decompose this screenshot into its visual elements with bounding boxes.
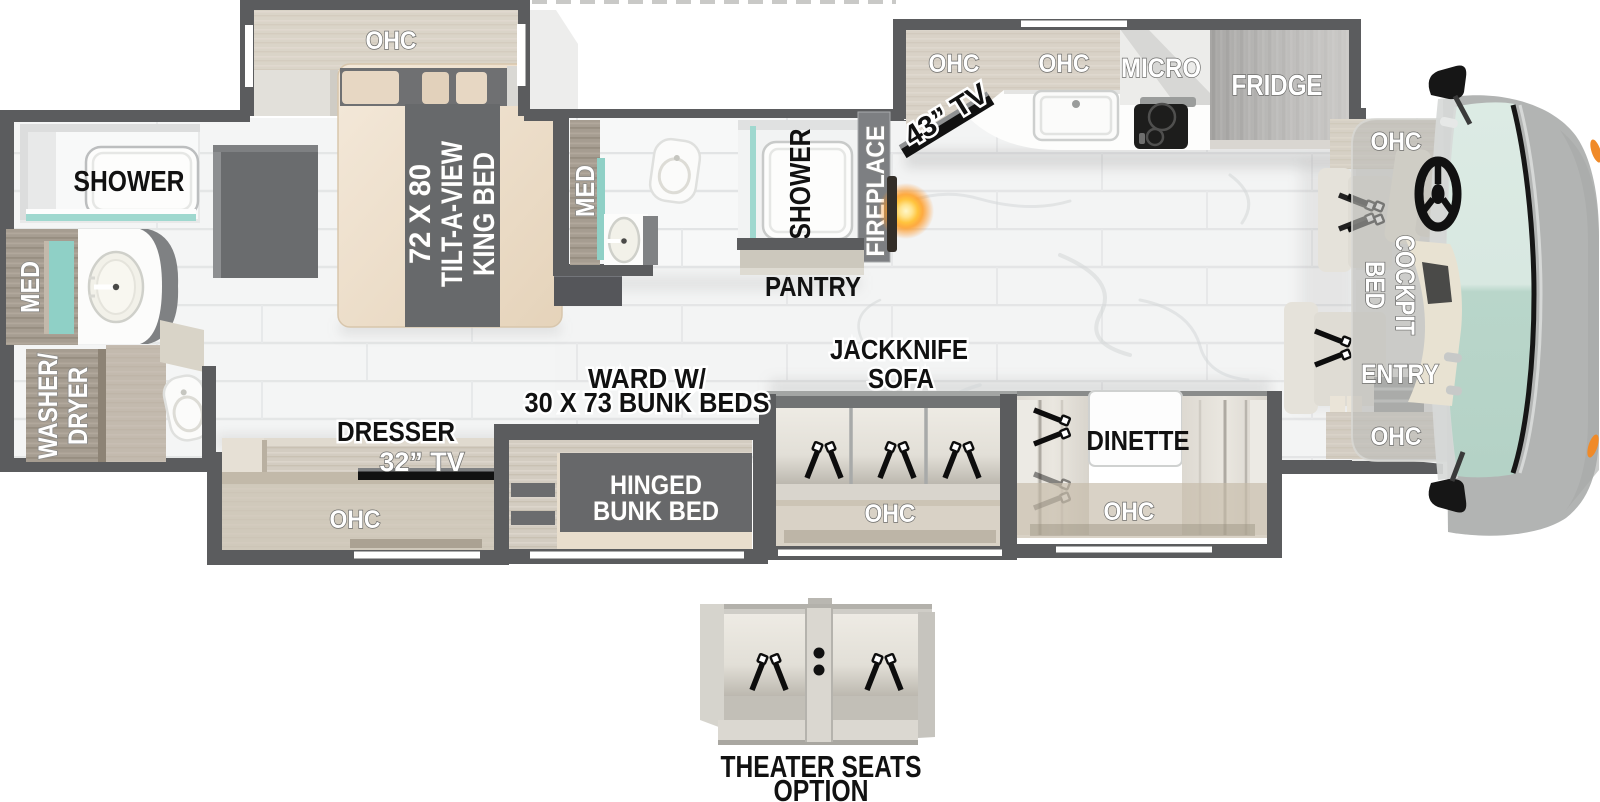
svg-text:SHOWER: SHOWER — [785, 128, 817, 239]
svg-text:OHC: OHC — [1371, 423, 1422, 451]
svg-text:DRESSER: DRESSER — [337, 416, 455, 447]
svg-text:OHC: OHC — [1371, 128, 1422, 156]
svg-text:OHC: OHC — [865, 500, 916, 528]
svg-text:MED: MED — [15, 261, 45, 313]
svg-text:HINGEDBUNK BED: HINGEDBUNK BED — [593, 470, 719, 526]
svg-text:FRIDGE: FRIDGE — [1232, 70, 1323, 102]
svg-text:PANTRY: PANTRY — [765, 271, 861, 302]
svg-text:OHC: OHC — [366, 27, 417, 55]
svg-text:ENTRY: ENTRY — [1361, 359, 1439, 389]
svg-text:OHC: OHC — [929, 50, 980, 78]
svg-text:MED: MED — [570, 165, 600, 217]
svg-text:OHC: OHC — [1039, 50, 1090, 78]
svg-text:OHC: OHC — [330, 506, 381, 534]
svg-text:OHC: OHC — [1104, 498, 1155, 526]
svg-text:DINETTE: DINETTE — [1087, 425, 1190, 456]
svg-text:WASHER/DRYER: WASHER/DRYER — [33, 353, 93, 459]
svg-text:FIREPLACE: FIREPLACE — [862, 126, 890, 257]
svg-text:SHOWER: SHOWER — [74, 166, 185, 198]
svg-text:32” TV: 32” TV — [380, 447, 465, 477]
svg-text:MICRO: MICRO — [1121, 53, 1201, 83]
